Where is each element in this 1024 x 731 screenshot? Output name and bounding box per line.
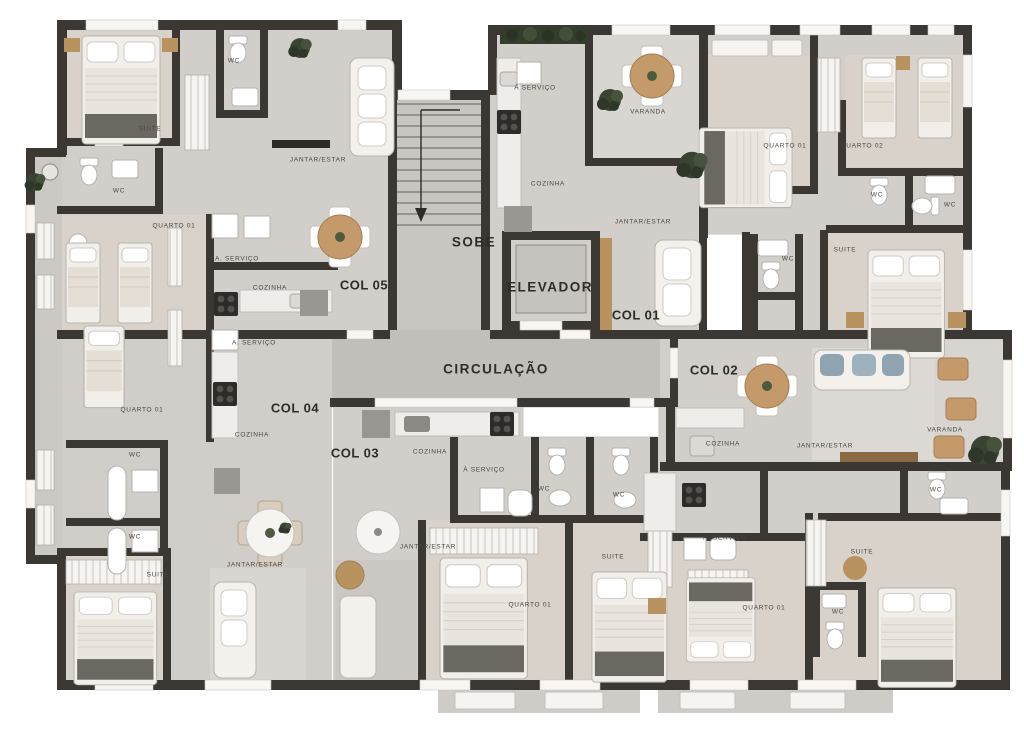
elevator-jamb xyxy=(600,238,612,330)
hedge xyxy=(500,27,588,44)
elevator-cab xyxy=(516,245,586,313)
dining-table-col03 xyxy=(356,510,400,554)
floor-plan-graphic xyxy=(0,0,1024,731)
floor-plan-canvas: SOBEELEVADORCIRCULAÇÃOCOL 01COL 02COL 03… xyxy=(0,0,1024,731)
